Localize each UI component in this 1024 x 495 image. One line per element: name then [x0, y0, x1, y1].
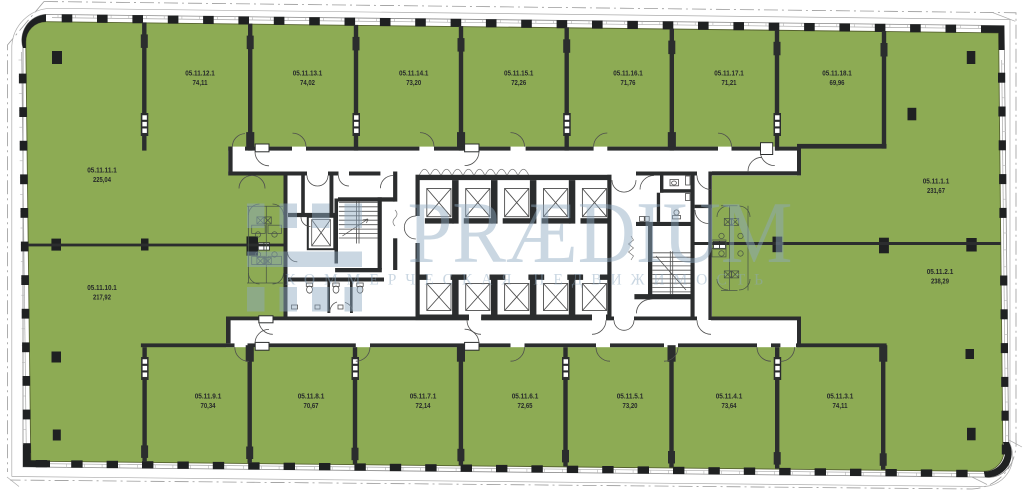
svg-text:217,92: 217,92 — [93, 292, 111, 301]
svg-text:05.11.9.1: 05.11.9.1 — [195, 392, 222, 401]
svg-text:73,20: 73,20 — [406, 78, 421, 87]
svg-text:73,64: 73,64 — [722, 401, 738, 410]
svg-text:05.11.10.1: 05.11.10.1 — [87, 283, 117, 292]
svg-text:05.11.7.1: 05.11.7.1 — [410, 392, 437, 401]
svg-text:05.11.15.1: 05.11.15.1 — [504, 69, 534, 78]
svg-text:69,96: 69,96 — [830, 78, 845, 87]
svg-text:05.11.17.1: 05.11.17.1 — [714, 69, 744, 78]
svg-text:05.11.13.1: 05.11.13.1 — [293, 69, 323, 78]
svg-text:05.11.6.1: 05.11.6.1 — [512, 392, 539, 401]
svg-text:05.11.16.1: 05.11.16.1 — [613, 69, 643, 78]
svg-text:238,29: 238,29 — [931, 276, 949, 285]
svg-text:74,11: 74,11 — [833, 401, 849, 410]
svg-text:74,02: 74,02 — [300, 78, 315, 87]
svg-text:74,11: 74,11 — [193, 78, 209, 87]
svg-text:71,21: 71,21 — [722, 78, 738, 87]
svg-text:70,34: 70,34 — [201, 401, 217, 410]
svg-text:72,26: 72,26 — [511, 78, 526, 87]
svg-text:70,67: 70,67 — [304, 401, 319, 410]
svg-text:05.11.4.1: 05.11.4.1 — [716, 392, 743, 401]
svg-text:72,65: 72,65 — [518, 401, 534, 410]
svg-text:05.11.18.1: 05.11.18.1 — [822, 69, 852, 78]
svg-text:05.11.8.1: 05.11.8.1 — [298, 392, 325, 401]
svg-text:PRÆDIUM: PRÆDIUM — [408, 185, 793, 282]
svg-text:05.11.14.1: 05.11.14.1 — [399, 69, 429, 78]
svg-text:225,04: 225,04 — [93, 175, 111, 184]
svg-text:05.11.12.1: 05.11.12.1 — [185, 69, 215, 78]
svg-text:72,14: 72,14 — [416, 401, 432, 410]
svg-text:05.11.2.1: 05.11.2.1 — [927, 267, 954, 276]
svg-text:71,76: 71,76 — [621, 78, 636, 87]
svg-text:05.11.5.1: 05.11.5.1 — [617, 392, 644, 401]
svg-text:05.11.1.1: 05.11.1.1 — [923, 177, 950, 186]
svg-text:05.11.3.1: 05.11.3.1 — [827, 392, 854, 401]
svg-text:231,67: 231,67 — [927, 186, 945, 195]
svg-text:73,20: 73,20 — [623, 401, 638, 410]
svg-text:05.11.11.1: 05.11.11.1 — [87, 166, 117, 175]
